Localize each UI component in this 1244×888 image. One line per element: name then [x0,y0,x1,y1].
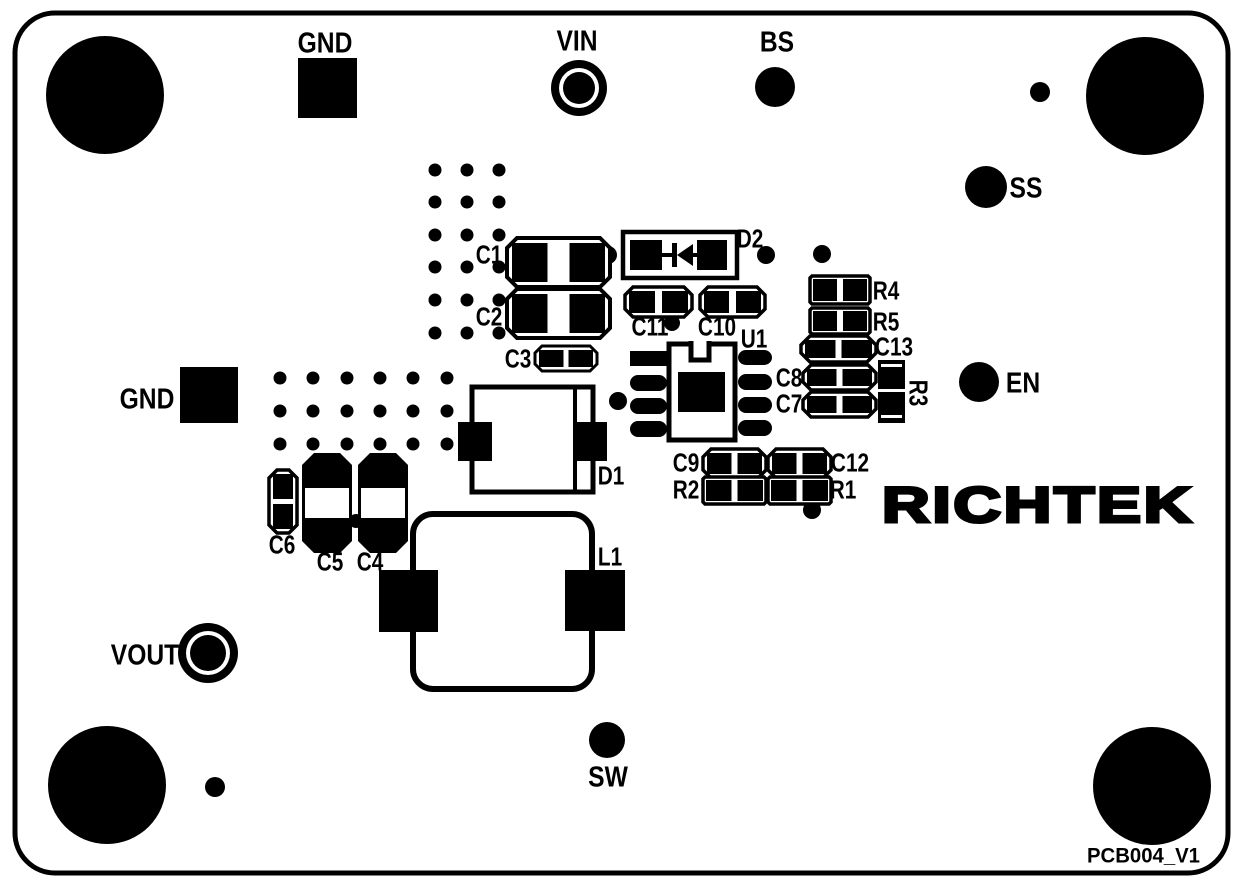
footprint-shape [570,294,606,333]
component-R2: R2 [673,475,766,504]
footprint-shape [813,279,837,301]
testpoint-pad-dot [965,166,1007,208]
footprint-shape [305,488,349,518]
via-dot [429,327,442,340]
silkscreen-dot [813,245,831,263]
via-dot [307,372,320,385]
testpoint-vin: VIN [551,25,607,116]
via-dot [429,164,442,177]
via-dot [461,261,474,274]
component-C1: C1 [476,238,610,287]
ref-label-C10: C10 [698,312,736,341]
footprint-shape [738,453,763,474]
ref-label-L1: L1 [598,542,622,571]
via-dot [429,196,442,209]
footprint-shape [565,570,625,631]
footprint-shape [379,570,438,632]
ref-label-C13: C13 [875,332,913,361]
via-dot [274,438,287,451]
component-R4: R4 [810,276,899,305]
component-R3: R3 [878,360,933,423]
ref-label-C12: C12 [831,448,869,477]
ref-label-R2: R2 [673,475,700,504]
pcb-version-label: PCB004_V1 [1087,845,1200,868]
ref-label-D1: D1 [598,461,625,490]
footprint-shape [512,243,548,282]
footprint-shape [697,240,727,270]
ref-label-C2: C2 [476,302,503,331]
footprint-shape [629,291,655,313]
footprint-shape [842,340,873,358]
footprint-shape [843,369,873,386]
via-dot [274,405,287,418]
via-dot [493,164,506,177]
component-C11: C11 [625,287,692,341]
via-dot [374,372,387,385]
silkscreen-dot [609,392,627,410]
testpoint-pad-dot [755,67,795,107]
testpoint-vout: VOUT [111,623,238,683]
testpoint-ring-inner [563,72,595,104]
testpoint-label-gnd-left: GND [120,383,175,415]
footprint-shape [843,279,867,301]
ref-label-C9: C9 [673,448,700,477]
footprint-shape [843,311,867,331]
via-dot [374,405,387,418]
diode-cathode-bar [672,243,677,267]
footprint-shape [630,240,662,270]
ref-label-C1: C1 [476,240,503,269]
via-dot [461,294,474,307]
ic-pin-pad [738,420,772,436]
component-C3: C3 [505,344,597,373]
ic-pin-pad [630,351,667,366]
footprint-shape [881,364,902,367]
via-dot [461,164,474,177]
footprint-shape [803,480,829,501]
testpoint-ring-inner [190,635,226,671]
via-dot [341,372,354,385]
silkscreen-dot [205,777,225,797]
footprint-shape [843,396,873,413]
ref-label-C5: C5 [317,547,344,576]
silkscreen-dot [1030,82,1050,102]
footprint-shape [736,291,761,313]
footprint-shape [803,453,828,474]
mounting-hole [48,726,166,844]
via-dot [407,405,420,418]
via-dot [493,196,506,209]
via-dot [307,438,320,451]
ref-label-C7: C7 [776,389,803,418]
footprint-shape [707,453,732,474]
component-C13: C13 [801,332,913,362]
via-dot [341,405,354,418]
footprint-shape [573,422,607,461]
testpoint-gnd-top: GND [298,27,357,118]
component-C9: C9 [673,448,766,478]
footprint-shape [738,480,764,501]
footprint-shape [512,294,548,333]
via-dot [461,196,474,209]
testpoint-pad-dot [959,362,999,402]
via-dot [429,261,442,274]
component-D2: D2 [623,224,763,278]
component-C7: C7 [776,389,876,418]
via-dot [429,229,442,242]
component-C4: C4 [357,453,408,576]
via-dot [274,372,287,385]
ic-pin-pad [630,398,667,414]
footprint-shape [458,422,492,461]
footprint-shape [772,453,797,474]
testpoint-gnd-left: GND [120,367,238,423]
component-C8: C8 [776,363,876,392]
pcb-board-drawing: GNDVINBSSSGNDENVOUTSWC1C2C3C11C10D2U1R4R… [0,0,1244,888]
component-D1: D1 [458,387,624,492]
ref-label-D2: D2 [737,224,764,253]
footprint-shape [807,369,837,386]
via-dot [441,438,454,451]
ic-thermal-pad [678,372,725,412]
testpoint-label-bs: BS [760,26,794,58]
mounting-hole [1086,37,1204,155]
footprint-shape [662,291,688,313]
footprint-shape [273,474,293,499]
ref-label-C8: C8 [776,363,803,392]
component-C6: C6 [269,470,297,559]
ic-pin-pad [738,397,772,413]
testpoint-bs: BS [755,26,795,107]
testpoint-sw: SW [588,722,628,793]
ic-pin-pad [738,374,772,390]
footprint-shape [706,480,732,501]
component-L1: L1 [379,514,625,689]
ref-label-C4: C4 [357,547,384,576]
testpoint-label-vin: VIN [556,25,597,57]
mounting-hole [46,36,164,154]
ref-label-C6: C6 [269,530,296,559]
footprint-shape [771,480,797,501]
testpoint-ss: SS [965,166,1042,208]
via-dot [461,229,474,242]
via-dot [461,327,474,340]
ref-label-R4: R4 [873,276,900,305]
ic-pin1-notch-outline [691,341,709,360]
footprint-shape [273,504,293,529]
footprint-shape [570,243,606,282]
via-dot [407,372,420,385]
via-dot [441,405,454,418]
ic-pin-pad [630,421,667,437]
ref-label-C3: C3 [505,344,532,373]
component-R1: R1 [768,475,856,504]
footprint-shape [878,392,905,423]
mounting-hole [1093,727,1211,845]
ref-label-C11: C11 [632,312,669,341]
testpoint-label-sw: SW [588,761,628,793]
footprint-shape [807,396,837,413]
testpoint-label-vout: VOUT [111,639,180,671]
via-dot [429,294,442,307]
testpoint-pad-square [180,367,238,423]
testpoint-label-ss: SS [1010,172,1043,204]
silkscreen-shapes: GNDVINBSSSGNDENVOUTSWC1C2C3C11C10D2U1R4R… [46,25,1211,845]
via-dot [307,405,320,418]
pcb-silkscreen-view: GNDVINBSSSGNDENVOUTSWC1C2C3C11C10D2U1R4R… [0,0,1244,888]
richtek-logo: RICHTEK [882,477,1194,533]
component-C12: C12 [768,448,869,478]
testpoint-label-gnd-top: GND [298,27,353,59]
ref-label-R1: R1 [830,475,857,504]
footprint-shape [881,415,902,418]
testpoint-label-en: EN [1006,367,1040,399]
via-cluster-2 [274,372,454,451]
testpoint-pad-dot [589,722,625,758]
footprint-shape [704,291,729,313]
via-dot [374,438,387,451]
component-C5: C5 [302,453,352,576]
footprint-shape [805,340,836,358]
footprint-shape [361,488,405,518]
via-dot [407,438,420,451]
ref-label-R3: R3 [904,380,933,407]
ref-label-U1: U1 [741,324,768,353]
component-U1: U1 [630,324,772,440]
testpoint-en: EN [959,362,1040,402]
via-dot [441,372,454,385]
ic-pin-pad [630,375,667,391]
footprint-shape [569,350,594,367]
footprint-shape [539,350,564,367]
testpoint-pad-square [298,58,357,118]
footprint-shape [813,311,837,331]
via-dot [341,438,354,451]
